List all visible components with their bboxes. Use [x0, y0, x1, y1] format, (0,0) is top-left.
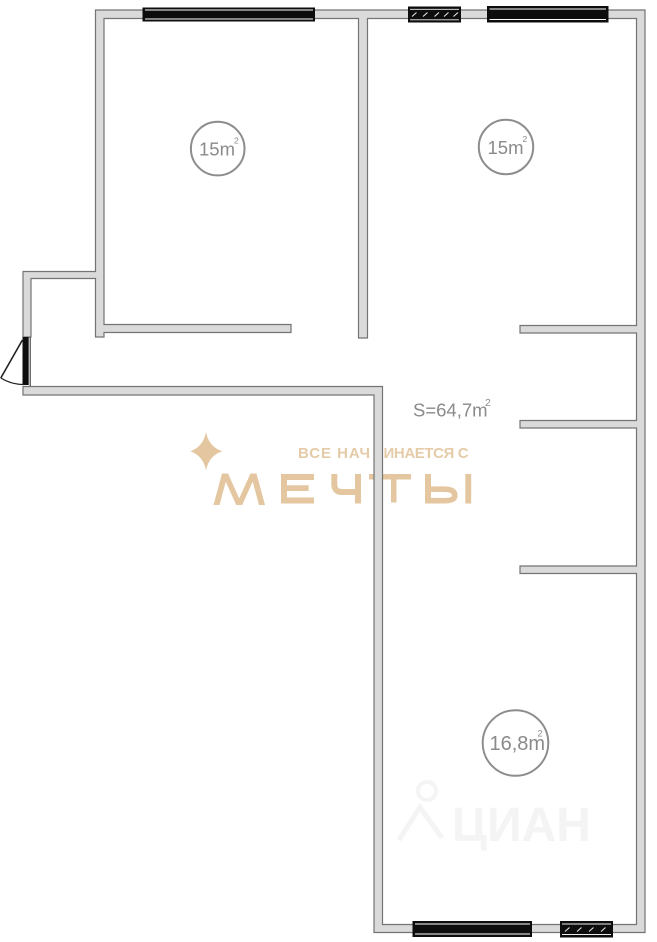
svg-text:ИНАЕТСЯ С: ИНАЕТСЯ С	[384, 445, 469, 462]
svg-text:2: 2	[234, 136, 239, 146]
svg-text:2: 2	[538, 729, 543, 739]
svg-text:15m: 15m	[199, 139, 235, 160]
svg-text:ВСЕ НАЧ: ВСЕ НАЧ	[298, 445, 371, 462]
svg-text:15m: 15m	[488, 137, 524, 158]
svg-text:ЦИАН: ЦИАН	[452, 799, 591, 852]
svg-text:2: 2	[523, 134, 528, 144]
svg-text:2: 2	[485, 397, 491, 409]
svg-text:S=64,7m: S=64,7m	[413, 400, 488, 421]
